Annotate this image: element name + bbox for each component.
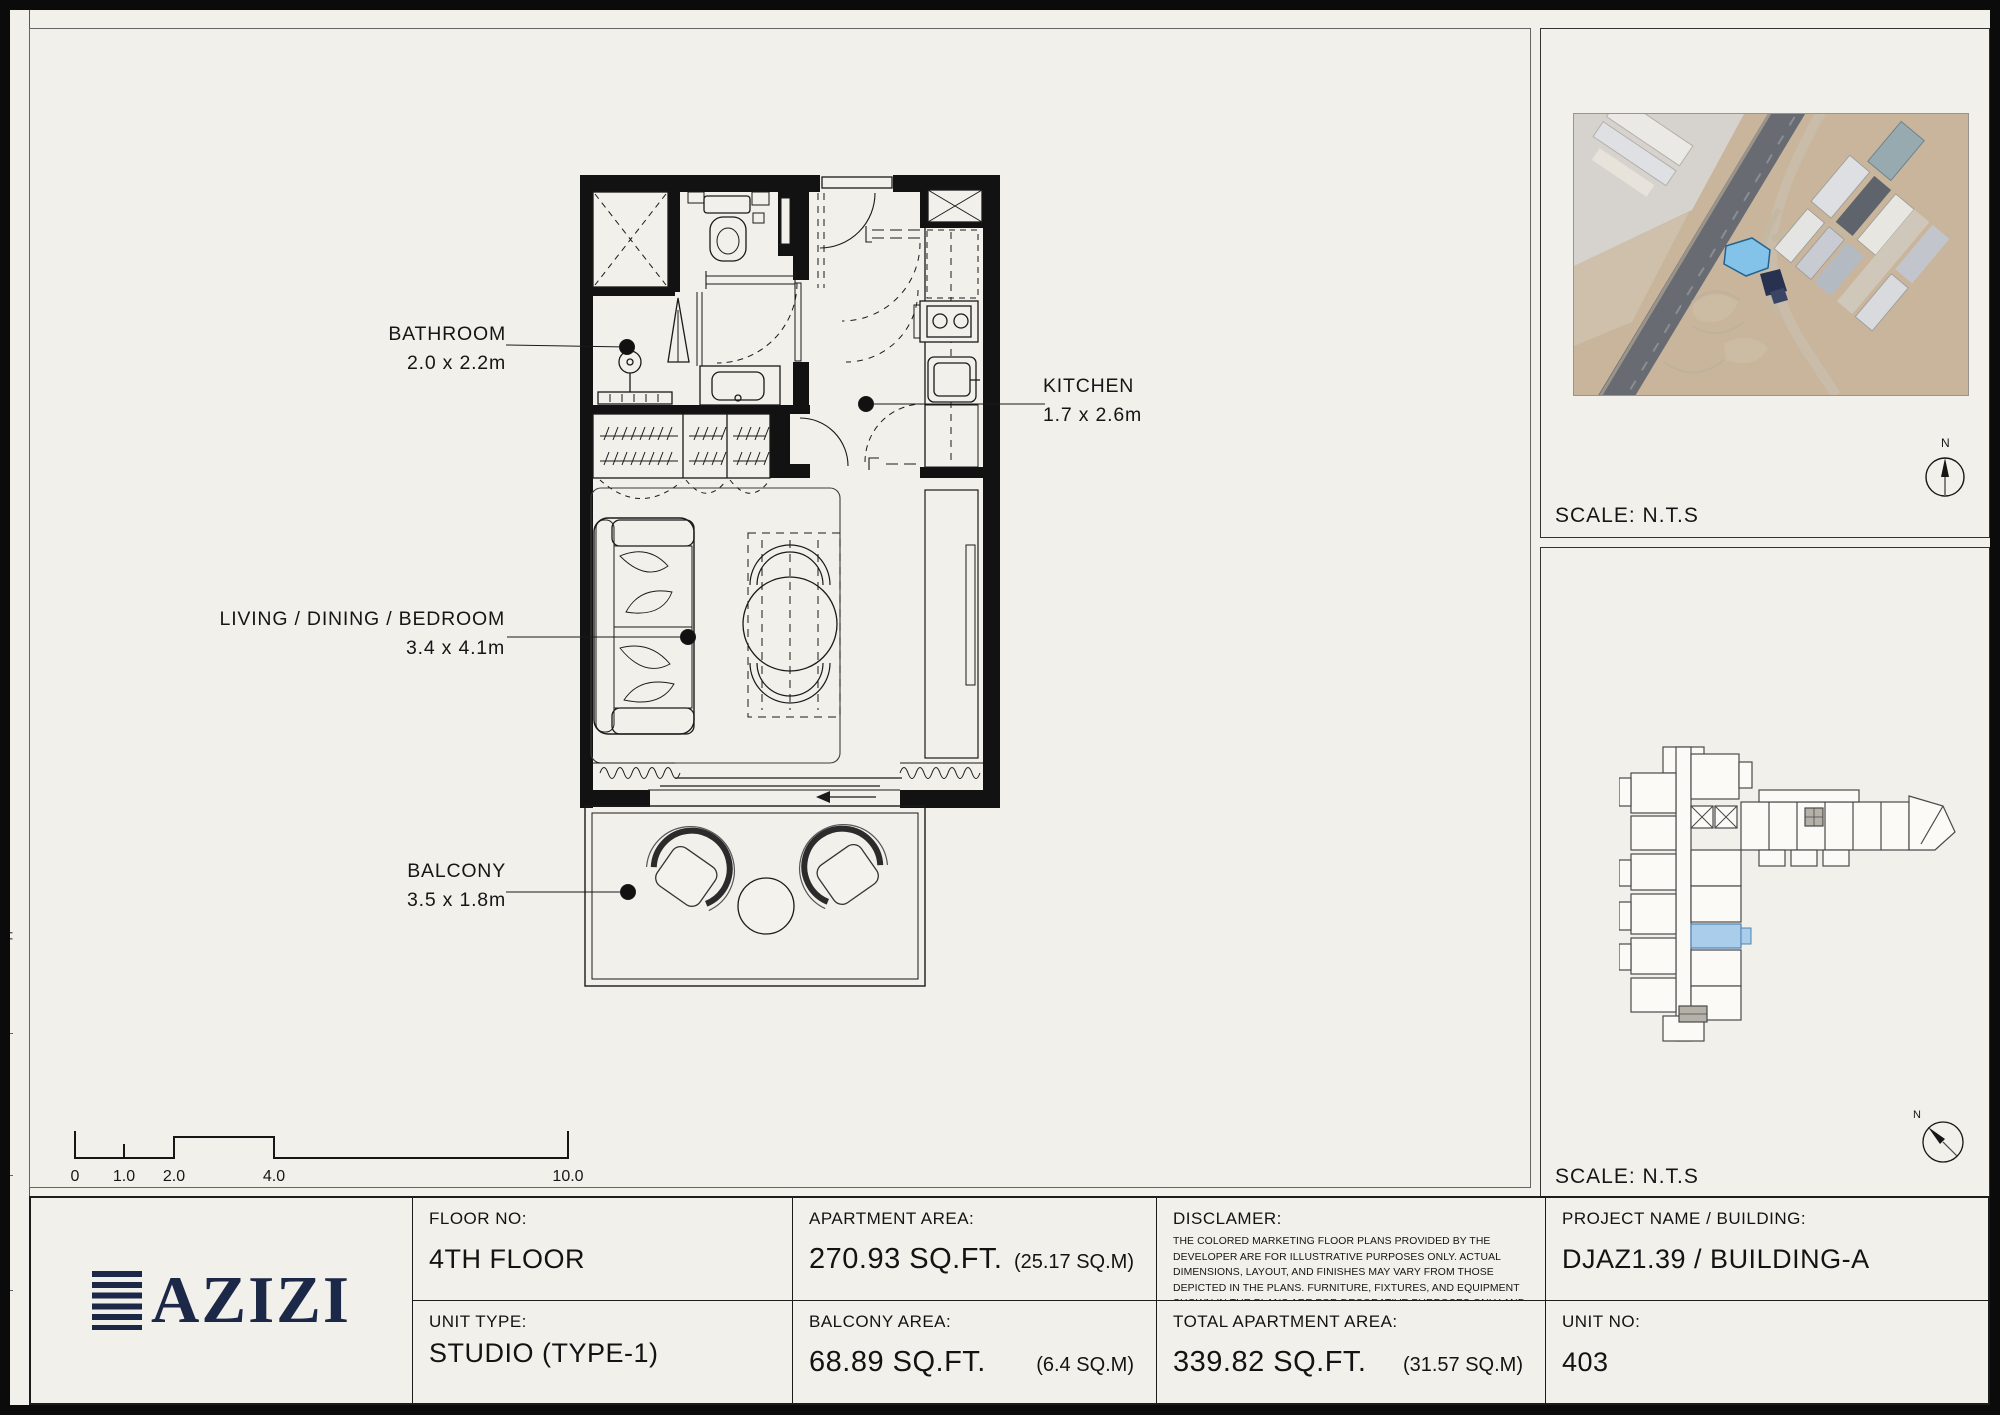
scale-tick-0: 0	[71, 1168, 80, 1186]
building-key-plan	[1619, 744, 1959, 1054]
north-letter: N	[1913, 1109, 1921, 1121]
satellite-image	[1573, 113, 1969, 396]
living-dims: 3.4 x 4.1m	[205, 639, 505, 659]
scale-tick-10: 10.0	[552, 1168, 583, 1186]
map-scale-label: SCALE: N.T.S	[1555, 504, 1699, 528]
project-name-value: DJAZ1.39 / BUILDING-A	[1562, 1244, 1972, 1275]
logo-text: AZIZI	[151, 1267, 351, 1334]
total-area-value: 339.82 SQ.FT.	[1173, 1346, 1367, 1379]
scale-bar-graphic	[75, 1131, 568, 1158]
title-block: AZIZI FLOOR NO: 4TH FLOOR APARTMENT AREA…	[29, 1196, 1990, 1405]
apartment-area-cell: APARTMENT AREA: 270.93 SQ.FT. (25.17 SQ.…	[793, 1198, 1157, 1301]
unit-type-value: STUDIO (TYPE-1)	[429, 1338, 776, 1369]
kitchen-name: KITCHEN	[1043, 377, 1273, 397]
balcony-name: BALCONY	[280, 862, 506, 882]
balcony-area-cell: BALCONY AREA: 68.89 SQ.FT. (6.4 SQ.M)	[793, 1301, 1157, 1404]
floor-no-cell: FLOOR NO: 4TH FLOOR	[413, 1198, 793, 1301]
total-area-label: TOTAL APARTMENT AREA:	[1173, 1312, 1529, 1332]
label-kitchen: KITCHEN 1.7 x 2.6m	[1043, 377, 1273, 425]
balcony-area-label: BALCONY AREA:	[809, 1312, 1140, 1332]
bathroom-dims: 2.0 x 2.2m	[280, 354, 506, 374]
bathroom-name: BATHROOM	[280, 325, 506, 345]
scale-tick-4: 4.0	[263, 1168, 285, 1186]
logo-bars-icon	[92, 1271, 142, 1330]
kitchen-dims: 1.7 x 2.6m	[1043, 406, 1273, 426]
floor-no-label: FLOOR NO:	[429, 1209, 776, 1229]
label-balcony: BALCONY 3.5 x 1.8m	[280, 862, 506, 910]
keyplan-scale-label: SCALE: N.T.S	[1555, 1165, 1699, 1189]
north-compass-icon: N	[1917, 435, 1973, 507]
key-plan-panel: N SCALE: N.T.S	[1540, 547, 1990, 1199]
unit-no-value: 403	[1562, 1347, 1972, 1378]
location-map-panel: N SCALE: N.T.S	[1540, 28, 1990, 538]
project-name-label: PROJECT NAME / BUILDING:	[1562, 1209, 1972, 1229]
project-name-cell: PROJECT NAME / BUILDING: DJAZ1.39 / BUIL…	[1546, 1198, 1988, 1301]
unit-type-label: UNIT TYPE:	[429, 1312, 776, 1332]
label-bathroom: BATHROOM 2.0 x 2.2m	[280, 325, 506, 373]
total-area-metric: (31.57 SQ.M)	[1403, 1354, 1523, 1377]
north-compass-icon: N	[1905, 1104, 1975, 1174]
floor-no-value: 4TH FLOOR	[429, 1244, 776, 1275]
apartment-area-value: 270.93 SQ.FT.	[809, 1243, 1003, 1276]
living-name: LIVING / DINING / BEDROOM	[205, 610, 505, 630]
balcony-area-metric: (6.4 SQ.M)	[1036, 1354, 1134, 1377]
disclaimer-cell: DISCLAMER: THE COLORED MARKETING FLOOR P…	[1157, 1198, 1546, 1301]
disclaimer-text: THE COLORED MARKETING FLOOR PLANS PROVID…	[1173, 1234, 1529, 1301]
unit-no-label: UNIT NO:	[1562, 1312, 1972, 1332]
fixtures	[585, 177, 983, 986]
unit-type-cell: UNIT TYPE: STUDIO (TYPE-1)	[413, 1301, 793, 1404]
apartment-area-metric: (25.17 SQ.M)	[1014, 1251, 1134, 1274]
balcony-dims: 3.5 x 1.8m	[280, 891, 506, 911]
walls	[580, 175, 1000, 808]
label-living: LIVING / DINING / BEDROOM 3.4 x 4.1m	[205, 610, 505, 658]
scale-tick-1: 1.0	[113, 1168, 135, 1186]
unit-no-cell: UNIT NO: 403	[1546, 1301, 1988, 1404]
azizi-logo: AZIZI	[92, 1267, 351, 1334]
sheet-paper: SHEET SIZE A3 DRAWN : Author REVIEWED : …	[10, 10, 1990, 1405]
scale-tick-2: 2.0	[163, 1168, 185, 1186]
north-letter: N	[1941, 436, 1950, 450]
balcony-area-value: 68.89 SQ.FT.	[809, 1346, 986, 1379]
disclaimer-label: DISCLAMER:	[1173, 1209, 1529, 1229]
logo-cell: AZIZI	[31, 1198, 413, 1403]
total-area-cell: TOTAL APARTMENT AREA: 339.82 SQ.FT. (31.…	[1157, 1301, 1546, 1404]
apartment-area-label: APARTMENT AREA:	[809, 1209, 1140, 1229]
